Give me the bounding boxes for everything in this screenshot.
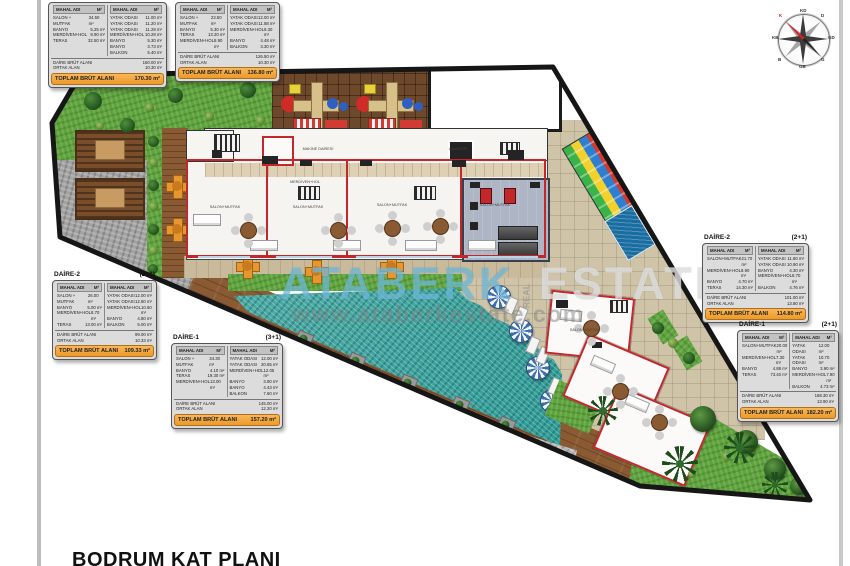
total-label: TOPLAM BRÜT ALANI <box>709 311 768 317</box>
treadmill <box>498 242 538 256</box>
room-area: 13.00 m² <box>85 322 102 328</box>
table-footer: DAİRE BRÜT ALANI168.30 m²ORTAK ALAN13.90… <box>740 391 836 405</box>
table-col-left: MAHAL ADIM²SALON + MUTFAK26.00 m²BANYO5.… <box>55 283 104 328</box>
table-total-row: TOPLAM BRÜT ALANI109.33 m² <box>55 345 154 357</box>
room-label: SALON+MUTFAK <box>377 203 408 207</box>
room-area: 4.76 m² <box>789 285 804 291</box>
table-column-header: MAHAL ADIM² <box>230 5 275 14</box>
table-row: YATAK ODASI10.70 m² <box>792 355 834 367</box>
picnic-table-top <box>242 261 252 271</box>
pergola-seating <box>75 178 145 220</box>
pergola-seating <box>75 130 145 172</box>
compass-label-gb: GB <box>799 64 806 69</box>
shrub <box>668 338 678 348</box>
wall-segment <box>470 182 480 188</box>
room-label: BALKON <box>230 44 247 50</box>
room-label: SALON + MUTFAK <box>180 15 211 27</box>
unexcavated-notch <box>428 64 562 132</box>
room-area: 8.90 m² <box>741 268 753 280</box>
compass-label-d: D <box>821 13 824 18</box>
table-row: SALON + MUTFAK34.50 m² <box>53 15 105 27</box>
shrub <box>149 158 158 167</box>
dining-table <box>612 383 629 400</box>
table-column-header: MAHAL ADIM² <box>53 5 105 14</box>
room-label: SALON+MUTFAK <box>293 205 324 209</box>
bush <box>148 180 159 191</box>
staircase <box>414 186 436 200</box>
gym-equipment <box>470 222 478 230</box>
room-label: SALON + MUTFAK <box>53 15 89 27</box>
table-row: ORTAK ALAN12.20 m² <box>176 406 278 412</box>
apartment-wall <box>544 160 546 256</box>
compass-label-kb: KB <box>772 35 779 40</box>
shrub <box>96 122 104 130</box>
sofa <box>250 240 278 251</box>
dining-table <box>432 218 449 235</box>
room-area: 8.70 m² <box>792 273 804 285</box>
table-total-row: TOPLAM BRÜT ALANI136.80 m² <box>178 67 277 79</box>
table-title-row: DAİRE-1(3+1) <box>173 334 281 341</box>
table-col-left: MAHAL ADIM²SALON+MUTFAK20.00 m²MERDİVEN+… <box>740 333 789 389</box>
table-row: ORTAK ALAN13.80 m² <box>707 301 804 307</box>
table-col-left: MAHAL ADIM²SALON + MUTFAK34.50 m²BANYO5.… <box>51 5 107 56</box>
info-table-daire2-left: DAİRE-2(2+1) MAHAL ADIM²SALON + MUTFAK26… <box>52 271 157 360</box>
table-row: BALKON4.73 m² <box>792 384 834 390</box>
table-row: MERDİVEN+HOL13.00 m² <box>176 379 225 391</box>
table-column-header: MAHAL ADIM² <box>57 283 102 292</box>
bush <box>240 82 256 98</box>
room-area: 10.30 m² <box>258 60 275 66</box>
room-area: 9.30 m² <box>264 27 275 39</box>
room-area: 10.70 m² <box>819 355 835 367</box>
wall-segment <box>300 160 312 166</box>
room-label: TERAS <box>57 322 71 328</box>
tree <box>690 406 716 432</box>
table-type: (2+1) <box>140 271 155 278</box>
info-table-daire2-right: DAİRE-2(2+1) MAHAL ADIM²SALON+MUTFAK21.7… <box>702 234 809 323</box>
room-label: BALKON <box>758 285 775 291</box>
table-row: ORTAK ALAN10.33 m² <box>57 338 152 344</box>
table-row: MERDİVEN+HOL8.90 m² <box>707 268 753 280</box>
room-label: BALKON <box>110 50 127 56</box>
table-col-right: MAHAL ADIM²YATAK ODASI12.00 m²YATAK ODAS… <box>104 283 154 328</box>
room-area: 7.60 m² <box>263 391 278 397</box>
play-tube <box>402 98 413 109</box>
total-label: TOPLAM BRÜT ALANI <box>59 348 118 354</box>
play-tube <box>414 102 423 111</box>
play-block <box>364 84 376 94</box>
table-row: ORTAK ALAN10.30 m² <box>180 60 275 66</box>
tree <box>790 477 808 495</box>
room-label: MERDİVEN+HOL <box>176 379 210 391</box>
room-label: MERDİVEN+HOL <box>290 180 320 184</box>
table-column-header: MAHAL ADIM² <box>742 333 787 342</box>
room-label: ASANSÖR <box>449 147 468 151</box>
total-value: 170.30 m² <box>135 76 161 82</box>
table-title: DAİRE-2 <box>54 271 80 278</box>
room-label: BALKON <box>107 322 124 328</box>
room-area: 12.05 m² <box>264 368 278 380</box>
sofa <box>193 214 221 226</box>
room-area: 5.00 m² <box>137 322 152 328</box>
plan-title: BODRUM KAT PLANI <box>72 549 281 566</box>
info-table-daire1-right: DAİRE-1(2+1) MAHAL ADIM²SALON+MUTFAK20.0… <box>737 321 839 422</box>
shrub <box>256 116 265 125</box>
room-label: SALON+MUTFAK <box>570 328 601 332</box>
page-edge-right <box>839 0 843 566</box>
room-area: 3.30 m² <box>260 44 275 50</box>
room-label: TERAS <box>53 38 67 44</box>
total-value: 109.33 m² <box>125 348 151 354</box>
room-label: YATAK ODASI <box>792 355 818 367</box>
table-column-header: MAHAL ADIM² <box>792 333 834 342</box>
room-area: 7.30 m² <box>776 355 787 367</box>
total-label: TOPLAM BRÜT ALANI <box>55 76 114 82</box>
room-area: 14.30 m² <box>736 285 753 291</box>
floor-plan-canvas: SALON+MUTFAKSALON+MUTFAKSALON+MUTFAKSALO… <box>0 0 850 566</box>
room-label: MERDİVEN+HOL <box>180 38 214 50</box>
palm-tree <box>662 446 698 482</box>
table-box: MAHAL ADIM²SALON+MUTFAK21.70 m²MERDİVEN+… <box>702 243 809 323</box>
table-column-header: MAHAL ADIM² <box>180 5 225 14</box>
apartment-wall <box>460 160 462 256</box>
table-title: DAİRE-1 <box>173 334 199 341</box>
table-col-left: MAHAL ADIM²SALON + MUTFAK23.50 m²BANYO5.… <box>178 5 227 50</box>
table-row: ORTAK ALAN13.90 m² <box>742 399 834 405</box>
table-row: TERAS13.00 m² <box>57 322 102 328</box>
building-corridor <box>205 163 545 177</box>
table-title-row: DAİRE-1(2+1) <box>739 321 837 328</box>
info-table-top-left: MAHAL ADIM²SALON + MUTFAK34.50 m²BANYO5.… <box>48 2 167 88</box>
bush <box>168 88 183 103</box>
page-edge-left <box>37 0 41 566</box>
shrub <box>149 246 158 255</box>
table-row: SALON + MUTFAK23.50 m² <box>180 15 225 27</box>
room-area: 73.40 m² <box>770 372 787 378</box>
shrub <box>145 103 154 112</box>
table-footer: DAİRE BRÜT ALANI126.50 m²ORTAK ALAN10.30… <box>178 52 277 66</box>
compass-label-kd: KD <box>800 8 807 13</box>
room-label: SALON + MUTFAK <box>57 293 88 305</box>
table-type: (3+1) <box>266 334 281 341</box>
room-label: BALKON <box>230 391 247 397</box>
room-area: 4.73 m² <box>820 384 835 390</box>
total-label: TOPLAM BRÜT ALANI <box>178 417 237 423</box>
pergola-table <box>95 188 125 208</box>
room-area: 34.50 m² <box>89 15 105 27</box>
room-area: 32.50 m² <box>88 38 105 44</box>
table-column-header: MAHAL ADIM² <box>110 5 162 14</box>
total-value: 182.20 m² <box>807 410 833 416</box>
table-row: BALKON4.76 m² <box>758 285 804 291</box>
room-area: 34.30 m² <box>209 356 224 368</box>
table-col-left: MAHAL ADIM²SALON + MUTFAK34.30 m²BANYO4.… <box>174 346 227 397</box>
table-column-header: MAHAL ADIM² <box>707 246 753 255</box>
room-label: MERDİVEN+HOL <box>758 273 792 285</box>
table-total-row: TOPLAM BRÜT ALANI182.20 m² <box>740 407 836 419</box>
room-area: 5.40 m² <box>147 50 162 56</box>
table-footer: DAİRE BRÜT ALANI99.00 m²ORTAK ALAN10.33 … <box>55 330 154 344</box>
room-label: MAKİNE DAİRESİ <box>303 147 334 151</box>
compass-label-gd: GD <box>828 35 835 40</box>
play-tube <box>327 98 338 109</box>
table-total-row: TOPLAM BRÜT ALANI114.80 m² <box>705 308 806 320</box>
table-total-row: TOPLAM BRÜT ALANI170.30 m² <box>51 73 164 85</box>
playground-equipment <box>356 78 426 134</box>
room-area: 10.30 m² <box>145 65 162 71</box>
dining-table <box>651 414 668 431</box>
table-col-right: MAHAL ADIM²YATAK ODASI12.00 m²YATAK ODAS… <box>789 333 836 389</box>
compass-label-b: B <box>778 57 781 62</box>
table-row: MERDİVEN+HOL12.05 m² <box>230 368 279 380</box>
table-title: DAİRE-1 <box>739 321 765 328</box>
table-row: TERAS32.50 m² <box>53 38 105 44</box>
dining-table <box>384 220 401 237</box>
table-row: BALKON5.40 m² <box>110 50 162 56</box>
table-row: MERDİVEN+HOL8.90 m² <box>180 38 225 50</box>
wall-segment <box>508 150 524 160</box>
table-box: MAHAL ADIM²SALON+MUTFAK20.00 m²MERDİVEN+… <box>737 330 839 422</box>
room-area: 10.33 m² <box>135 338 152 344</box>
sofa <box>405 240 437 251</box>
table-col-right: MAHAL ADIM²YATAK ODASI12.00 m²YATAK ODAS… <box>227 346 281 397</box>
table-box: MAHAL ADIM²SALON + MUTFAK34.50 m²BANYO5.… <box>48 2 167 88</box>
pergola-table <box>95 140 125 160</box>
room-area: 8.70 m² <box>91 310 102 322</box>
treadmill <box>498 226 538 240</box>
shrub <box>149 202 158 211</box>
table-footer: DAİRE BRÜT ALANI145.00 m²ORTAK ALAN12.20… <box>174 399 280 413</box>
room-label: YATAK ODASI <box>792 343 818 355</box>
table-row: SALON + MUTFAK34.30 m² <box>176 356 225 368</box>
room-label: MERDİVEN+HOL <box>742 355 776 367</box>
room-area: 12.20 m² <box>261 406 278 412</box>
room-label: MERDİVEN+HOL <box>230 27 264 39</box>
shrub <box>205 112 214 121</box>
table-col-left: MAHAL ADIM²SALON+MUTFAK21.70 m²MERDİVEN+… <box>705 246 755 291</box>
table-row: MERDİVEN+HOL9.30 m² <box>230 27 275 39</box>
room-label: ORTAK ALAN <box>707 301 734 307</box>
play-block <box>289 84 301 94</box>
table-row: TERAS14.30 m² <box>707 285 753 291</box>
info-table-top-second: MAHAL ADIM²SALON + MUTFAK23.50 m²BANYO5.… <box>175 2 280 82</box>
room-label: SALON+MUTFAK <box>210 205 241 209</box>
room-area: 10.50 m² <box>141 305 152 317</box>
bush <box>84 92 102 110</box>
table-row: MERDİVEN+HOL7.90 m² <box>792 372 834 384</box>
bush <box>148 224 159 235</box>
picnic-table <box>166 175 188 197</box>
total-value: 114.80 m² <box>777 311 802 317</box>
table-col-right: MAHAL ADIM²YATAK ODASI12.00 m²YATAK ODAS… <box>227 5 277 50</box>
picnic-table <box>166 218 188 240</box>
table-row: SALON+MUTFAK20.00 m² <box>742 343 787 355</box>
window-strip <box>198 256 250 258</box>
table-row: ORTAK ALAN10.30 m² <box>53 65 162 71</box>
total-label: TOPLAM BRÜT ALANI <box>182 70 241 76</box>
compass-label-k: K <box>779 13 782 18</box>
room-area: 23.50 m² <box>211 15 225 27</box>
picnic-table-top <box>172 224 182 234</box>
table-row: MERDİVEN+HOL7.30 m² <box>742 355 787 367</box>
table-row: BALKON3.30 m² <box>230 44 275 50</box>
room-label: TERAS <box>742 372 756 378</box>
room-label: MERDİVEN+HOL <box>107 305 141 317</box>
table-title-row: DAİRE-2(2+1) <box>704 234 807 241</box>
table-column-header: MAHAL ADIM² <box>230 346 279 355</box>
room-area: 21.70 m² <box>742 256 753 268</box>
playground-equipment <box>281 78 351 134</box>
table-box: MAHAL ADIM²SALON + MUTFAK34.30 m²BANYO4.… <box>171 343 283 429</box>
table-row: MERDİVEN+HOL10.50 m² <box>107 305 152 317</box>
room-label: SALON+MUTFAK <box>480 203 511 207</box>
room-label: MERDİVEN+HOL <box>230 368 264 380</box>
room-label: ORTAK ALAN <box>742 399 769 405</box>
staircase <box>298 186 320 200</box>
table-column-header: MAHAL ADIM² <box>107 283 152 292</box>
table-col-right: MAHAL ADIM²YATAK ODASI11.00 m²YATAK ODAS… <box>107 5 164 56</box>
picnic-table-top <box>172 181 182 191</box>
compass-label-g: G <box>821 57 825 62</box>
wall-segment <box>530 182 540 188</box>
apartment-wall <box>186 160 188 256</box>
table-row: BALKON5.00 m² <box>107 322 152 328</box>
room-label: SALON+MUTFAK <box>742 343 777 355</box>
room-label: ORTAK ALAN <box>53 65 80 71</box>
table-box: MAHAL ADIM²SALON + MUTFAK23.50 m²BANYO5.… <box>175 2 280 82</box>
dining-table <box>330 222 347 239</box>
room-label: TERAS <box>707 285 721 291</box>
room-label: BALKON <box>792 384 809 390</box>
room-label: MERDİVEN+HOL <box>792 372 826 384</box>
room-area: 13.00 m² <box>210 379 224 391</box>
exercise-machine <box>480 188 492 204</box>
bush <box>683 352 695 364</box>
room-area: 20.00 m² <box>777 343 788 355</box>
bush <box>652 322 664 334</box>
wall-segment <box>262 156 278 164</box>
table-row: MERDİVEN+HOL8.70 m² <box>758 273 804 285</box>
room-label: MERDİVEN+HOL <box>57 310 91 322</box>
table-total-row: TOPLAM BRÜT ALANI157.20 m² <box>174 414 280 426</box>
sofa <box>333 240 361 251</box>
room-label: SALON + MUTFAK <box>176 356 209 368</box>
total-value: 136.80 m² <box>248 70 274 76</box>
table-type: (2+1) <box>792 234 807 241</box>
room-area: 13.80 m² <box>787 301 804 307</box>
table-footer: DAİRE BRÜT ALANI101.00 m²ORTAK ALAN13.80… <box>705 293 806 307</box>
table-title-row: DAİRE-2(2+1) <box>54 271 155 278</box>
wall-segment <box>452 160 466 167</box>
table-row: SALON + MUTFAK26.00 m² <box>57 293 102 305</box>
table-row: SALON+MUTFAK21.70 m² <box>707 256 753 268</box>
bush <box>148 136 159 147</box>
total-value: 157.20 m² <box>251 417 277 423</box>
table-col-right: MAHAL ADIM²YATAK ODASI11.80 m²YATAK ODAS… <box>755 246 806 291</box>
room-label: ORTAK ALAN <box>180 60 207 66</box>
room-area: 12.00 m² <box>819 343 835 355</box>
table-footer: DAİRE BRÜT ALANI160.00 m²ORTAK ALAN10.30… <box>51 58 164 72</box>
exercise-machine <box>504 188 516 204</box>
palm-tree <box>588 396 618 426</box>
room-area: 26.00 m² <box>88 293 102 305</box>
info-table-daire1-center: DAİRE-1(3+1) MAHAL ADIM²SALON + MUTFAK34… <box>171 334 283 429</box>
room-area: 7.90 m² <box>826 372 834 384</box>
table-title: DAİRE-2 <box>704 234 730 241</box>
wall-segment <box>360 160 372 166</box>
room-area: 13.90 m² <box>817 399 834 405</box>
sofa <box>468 240 496 251</box>
table-row: BALKON7.60 m² <box>230 391 279 397</box>
watermark-url: www.ataberkestate.com <box>292 301 585 328</box>
table-row: MERDİVEN+HOL8.70 m² <box>57 310 102 322</box>
palm-tree <box>762 472 788 498</box>
wall-segment <box>592 342 602 348</box>
dining-table <box>240 222 257 239</box>
gym-equipment <box>470 202 478 210</box>
table-row: YATAK ODASI12.00 m² <box>792 343 834 355</box>
room-label: ORTAK ALAN <box>57 338 84 344</box>
room-area: 8.90 m² <box>214 38 225 50</box>
palm-tree <box>724 432 756 464</box>
table-row: TERAS73.40 m² <box>742 372 787 378</box>
compass-rose: KKDDGDGGBBKB <box>772 8 834 70</box>
table-type: (2+1) <box>822 321 837 328</box>
play-tube <box>339 102 348 111</box>
room-label: SALON+MUTFAK <box>707 256 742 268</box>
table-column-header: MAHAL ADIM² <box>176 346 225 355</box>
room-label: MERDİVEN+HOL <box>707 268 741 280</box>
table-box: MAHAL ADIM²SALON + MUTFAK26.00 m²BANYO5.… <box>52 280 157 360</box>
wall-segment <box>212 150 222 158</box>
table-column-header: MAHAL ADIM² <box>758 246 804 255</box>
total-label: TOPLAM BRÜT ALANI <box>744 410 803 416</box>
room-label: ORTAK ALAN <box>176 406 203 412</box>
bush <box>120 118 135 133</box>
